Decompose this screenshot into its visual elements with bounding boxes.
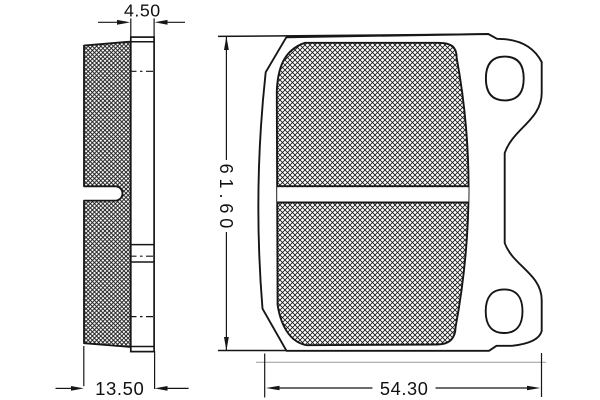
svg-text:54.30: 54.30	[380, 379, 429, 399]
svg-text:13.50: 13.50	[95, 378, 144, 399]
svg-text:4.50: 4.50	[124, 0, 161, 20]
svg-text:61.60: 61.60	[216, 164, 236, 234]
